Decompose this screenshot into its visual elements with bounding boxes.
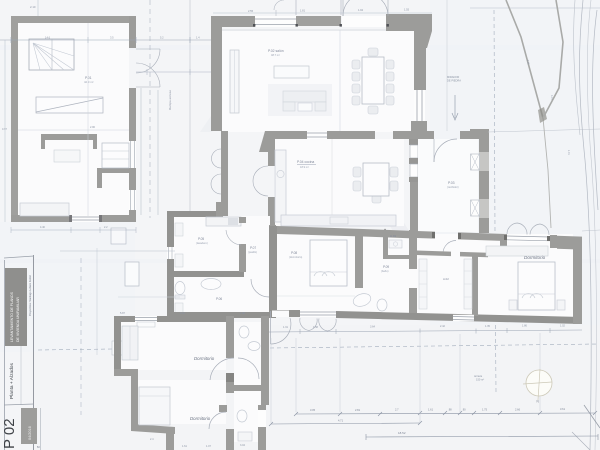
svg-text:4.40: 4.40 (40, 226, 45, 229)
svg-text:1.75: 1.75 (482, 408, 488, 412)
svg-text:3.04: 3.04 (240, 444, 245, 447)
svg-text:P.09: P.09 (383, 265, 389, 269)
svg-text:5.2: 5.2 (160, 36, 164, 40)
svg-text:2.10: 2.10 (30, 5, 36, 9)
svg-text:2.81: 2.81 (355, 408, 361, 412)
svg-text:2.2: 2.2 (104, 226, 108, 229)
svg-text:A.02: A.02 (443, 277, 449, 281)
svg-text:150 m²: 150 m² (476, 378, 484, 382)
svg-text:P.05: P.05 (198, 237, 204, 241)
svg-text:P.03: P.03 (448, 181, 455, 185)
svg-text:2.55: 2.55 (248, 9, 254, 13)
svg-text:48.7 m²: 48.7 m² (271, 53, 280, 57)
svg-text:1.58: 1.58 (313, 326, 318, 329)
svg-text:1.02: 1.02 (560, 325, 565, 328)
svg-text:terraza: terraza (474, 374, 483, 378)
svg-text:4.71: 4.71 (338, 419, 344, 423)
svg-text:DE PIEDRA: DE PIEDRA (447, 79, 461, 83)
svg-text:Rampa acceso: Rampa acceso (168, 90, 172, 110)
svg-text:P.04 cocina: P.04 cocina (297, 160, 314, 164)
svg-text:0.97: 0.97 (2, 128, 7, 131)
svg-text:LEVANTAMIENTO DE PLANOS: LEVANTAMIENTO DE PLANOS (10, 291, 14, 342)
svg-text:P.08: P.08 (291, 251, 297, 255)
svg-text:P.02 salón: P.02 salón (268, 49, 284, 53)
svg-text:1.61: 1.61 (428, 408, 434, 412)
svg-text:(pasillo): (pasillo) (248, 250, 257, 254)
svg-text:(lavadero): (lavadero) (196, 241, 208, 245)
svg-text:2.96: 2.96 (90, 126, 95, 129)
svg-text:18.9 m²: 18.9 m² (300, 165, 309, 169)
svg-text:.90: .90 (462, 408, 466, 412)
svg-text:3.5: 3.5 (110, 36, 114, 40)
svg-text:(recibidor): (recibidor) (447, 185, 459, 189)
svg-text:(dormitorio): (dormitorio) (289, 255, 302, 259)
svg-text:1.55: 1.55 (404, 8, 410, 12)
svg-text:1.07: 1.07 (206, 445, 211, 448)
svg-text:MIRADOR: MIRADOR (447, 75, 459, 79)
svg-text:5.87: 5.87 (120, 312, 125, 315)
svg-text:1.31: 1.31 (283, 326, 288, 329)
svg-text:3.64: 3.64 (370, 326, 375, 329)
svg-text:P 02: P 02 (1, 418, 18, 449)
svg-text:1.92: 1.92 (358, 8, 364, 12)
svg-text:Planta + Alzados: Planta + Alzados (9, 363, 15, 399)
svg-text:1.86: 1.86 (522, 325, 527, 328)
svg-text:Dormitorio: Dormitorio (190, 416, 211, 421)
svg-text:1.61: 1.61 (182, 445, 187, 448)
svg-text:1.35: 1.35 (485, 325, 490, 328)
svg-text:Dormitorio: Dormitorio (194, 356, 215, 361)
svg-text:2.7: 2.7 (395, 408, 399, 412)
svg-text:4.10: 4.10 (567, 150, 570, 155)
svg-text:3.05: 3.05 (310, 408, 316, 412)
svg-text:18.52: 18.52 (398, 431, 406, 435)
svg-text:(baño): (baño) (381, 269, 389, 273)
svg-text:1.81: 1.81 (300, 9, 306, 13)
svg-text:P.06: P.06 (216, 297, 222, 301)
svg-text:2.42: 2.42 (440, 325, 445, 328)
svg-text:1.98: 1.98 (240, 312, 245, 315)
svg-text:14.6: 14.6 (45, 36, 51, 40)
svg-text:3.10: 3.10 (180, 312, 185, 315)
svg-text:Dormitorio: Dormitorio (524, 255, 546, 260)
svg-text:3.61: 3.61 (560, 407, 566, 411)
svg-text:42.9 m²: 42.9 m² (84, 80, 94, 84)
svg-text:2.66: 2.66 (515, 408, 521, 412)
svg-text:.98: .98 (448, 408, 452, 412)
svg-text:Proyectista: Santiago Lobato: Proyectista: Santiago Lobato Ferrer (28, 275, 32, 316)
svg-text:P.07: P.07 (250, 246, 256, 250)
svg-text:1.4: 1.4 (196, 36, 200, 40)
svg-text:DE VIVIENDA UNIFAMILIAR: DE VIVIENDA UNIFAMILIAR (16, 297, 20, 342)
svg-text:A.01: A.01 (390, 234, 397, 238)
svg-text:04/2016: 04/2016 (28, 426, 32, 440)
svg-text:2.4: 2.4 (150, 438, 154, 441)
